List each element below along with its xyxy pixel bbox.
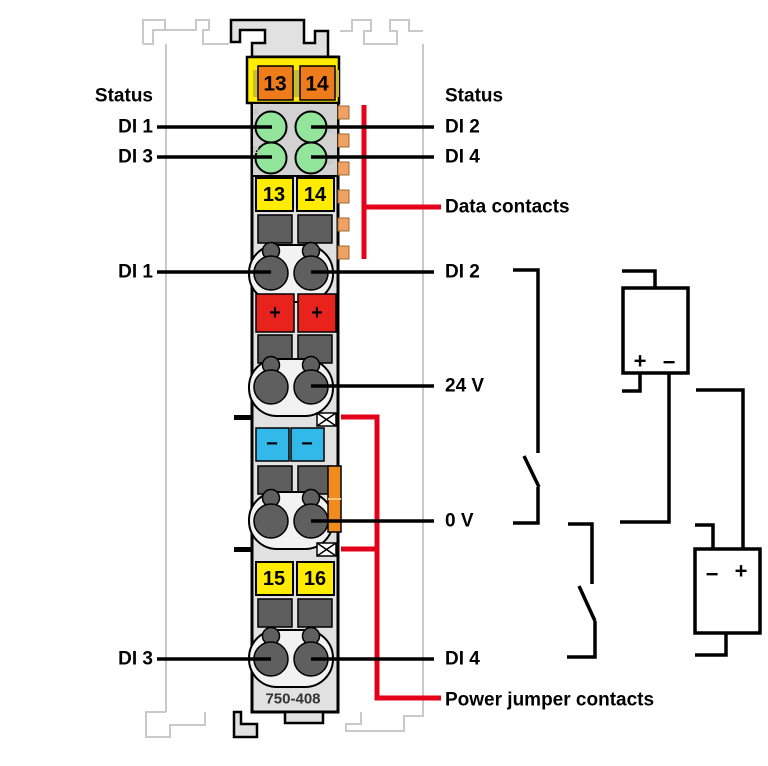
label-status-left: Status — [95, 86, 153, 107]
data-contact-tab — [338, 162, 349, 175]
clamp-di2 — [298, 215, 332, 243]
module-bottom-tab — [285, 712, 323, 723]
label-di3-led: DI 3 — [118, 147, 153, 168]
external-circuit — [513, 270, 760, 657]
power-contact-14-label: 14 — [305, 73, 329, 96]
data-contact-tab — [338, 106, 349, 119]
label-status-right: Status — [445, 86, 503, 107]
module-bottom-foot — [234, 712, 257, 737]
terminal-tag-13-label: 13 — [263, 184, 285, 206]
data-contact-tab — [338, 218, 349, 231]
data-contact-tab — [338, 190, 349, 203]
terminal-tag-15-label: 15 — [263, 568, 285, 590]
label-0v: 0 V — [445, 511, 474, 532]
plus-terminal-right-label: + — [311, 302, 323, 324]
wiring-diagram-750-408: 13 14 A B C D 13 14 — [0, 0, 768, 766]
label-24v: 24 V — [445, 376, 484, 397]
label-di4-terminal: DI 4 — [445, 649, 480, 670]
label-di4-led: DI 4 — [445, 147, 480, 168]
supply-lower-minus: − — [706, 562, 719, 587]
data-contact-tab — [338, 246, 349, 259]
jumper-tick-left-upper — [234, 415, 251, 420]
power-contact-13-label: 13 — [263, 73, 286, 96]
label-di2-led: DI 2 — [445, 117, 480, 138]
led-letter-b: B — [253, 145, 260, 155]
wire-port-24v-left — [254, 370, 288, 404]
label-di1-terminal: DI 1 — [118, 262, 153, 283]
part-number: 750-408 — [265, 691, 320, 708]
data-contact-tab — [338, 134, 349, 147]
supply-upper-plus: + — [634, 349, 647, 374]
clamp-di4 — [298, 599, 332, 627]
jumper-tick-left-lower — [234, 547, 251, 552]
power-jumper-bracket — [341, 417, 441, 698]
minus-terminal-left-label: − — [266, 433, 278, 455]
terminal-tag-14-label: 14 — [304, 184, 327, 206]
supply-lower-plus: + — [735, 559, 748, 584]
data-contact-tabs — [338, 106, 349, 259]
terminal-tag-16-label: 16 — [304, 568, 326, 590]
diagram-canvas: 13 14 A B C D 13 14 — [0, 0, 768, 766]
label-data-contacts: Data contacts — [445, 197, 570, 218]
wire-port-0v-left — [254, 504, 288, 538]
minus-terminal-right-label: − — [301, 433, 313, 455]
label-di1-led: DI 1 — [118, 117, 153, 138]
supply-upper-minus: − — [663, 350, 676, 375]
clamp-di1 — [258, 215, 292, 243]
label-power-jumper-contacts: Power jumper contacts — [445, 690, 654, 711]
plus-terminal-left-label: + — [269, 302, 281, 324]
label-di2-terminal: DI 2 — [445, 262, 480, 283]
label-di3-terminal: DI 3 — [118, 649, 153, 670]
switch-di4 — [567, 524, 595, 657]
led-letter-a: A — [253, 107, 260, 117]
module-top-latch — [231, 20, 328, 57]
switch-di2 — [513, 270, 539, 523]
clamp-di3 — [258, 599, 292, 627]
